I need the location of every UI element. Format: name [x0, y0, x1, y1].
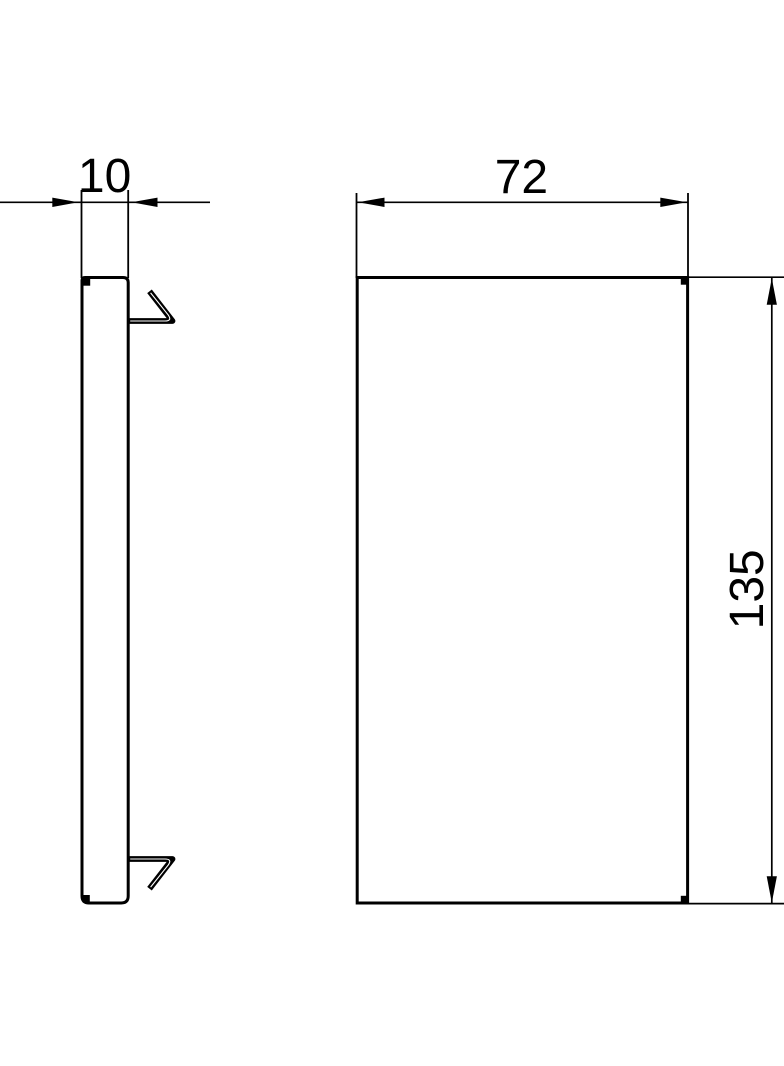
- svg-text:135: 135: [721, 549, 774, 629]
- svg-text:72: 72: [495, 151, 548, 204]
- svg-text:10: 10: [78, 150, 131, 203]
